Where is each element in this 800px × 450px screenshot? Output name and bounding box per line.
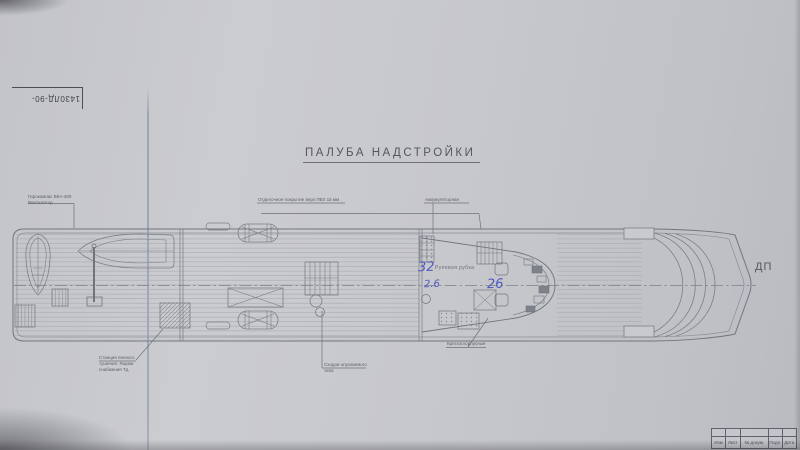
bow-curves: [640, 233, 715, 337]
annotation-foam-station-line3: снабжения Тд: [99, 367, 134, 373]
annotation-gangway: Сходни опускаемого типа: [324, 362, 367, 374]
room-label-wheelhouse: Рулевая рубка: [435, 265, 474, 271]
annotation-foam-station-line1: Станция пенного: [99, 355, 134, 361]
handwritten-wheelhouse-number: 32: [418, 260, 435, 276]
annotation-foam-station: Станция пенного тушения. Ящики снабжения…: [99, 355, 134, 373]
photo-shadow-bottom: [0, 440, 800, 450]
annotation-battery-room: Аккумуляторная: [425, 197, 459, 203]
photo-shadow-top-left: [0, 0, 70, 16]
centerplane-label: ДП: [755, 261, 772, 273]
handwritten-center-value: 26: [487, 277, 504, 293]
photo-shadow-right: [794, 0, 800, 450]
annotation-pedestal-line2: Вентилятор: [28, 200, 71, 206]
drawing-number: 1430ЛД-90-: [12, 88, 82, 109]
annotation-foam-station-line2: тушения. Ящики: [99, 361, 134, 367]
title-block-empty-row: [712, 429, 796, 437]
annotation-pedestal-line1: Гирокомпас ВКА-300: [28, 194, 71, 200]
annotation-gangway-line2: типа: [324, 368, 367, 374]
annotation-seats: Кресла корпусные: [447, 341, 485, 347]
annotation-pedestal: Гирокомпас ВКА-300 Вентилятор: [28, 194, 71, 206]
handwritten-left-value: 2.6: [424, 279, 440, 291]
annotation-deck-covering: Отделочное покрытие верх ПВХ 15 мм: [258, 197, 339, 203]
drawing-title: ПАЛУБА НАДСТРОЙКИ: [303, 147, 480, 163]
corner-drawing-number-stamp: 1430ЛД-90-: [12, 87, 83, 109]
deck-plan-drawing: [0, 0, 800, 450]
annotation-gangway-line1: Сходни опускаемого: [324, 362, 367, 368]
photographed-drawing: 1430ЛД-90- ПАЛУБА НАДСТРОЙКИ Гирокомпас …: [0, 0, 800, 450]
